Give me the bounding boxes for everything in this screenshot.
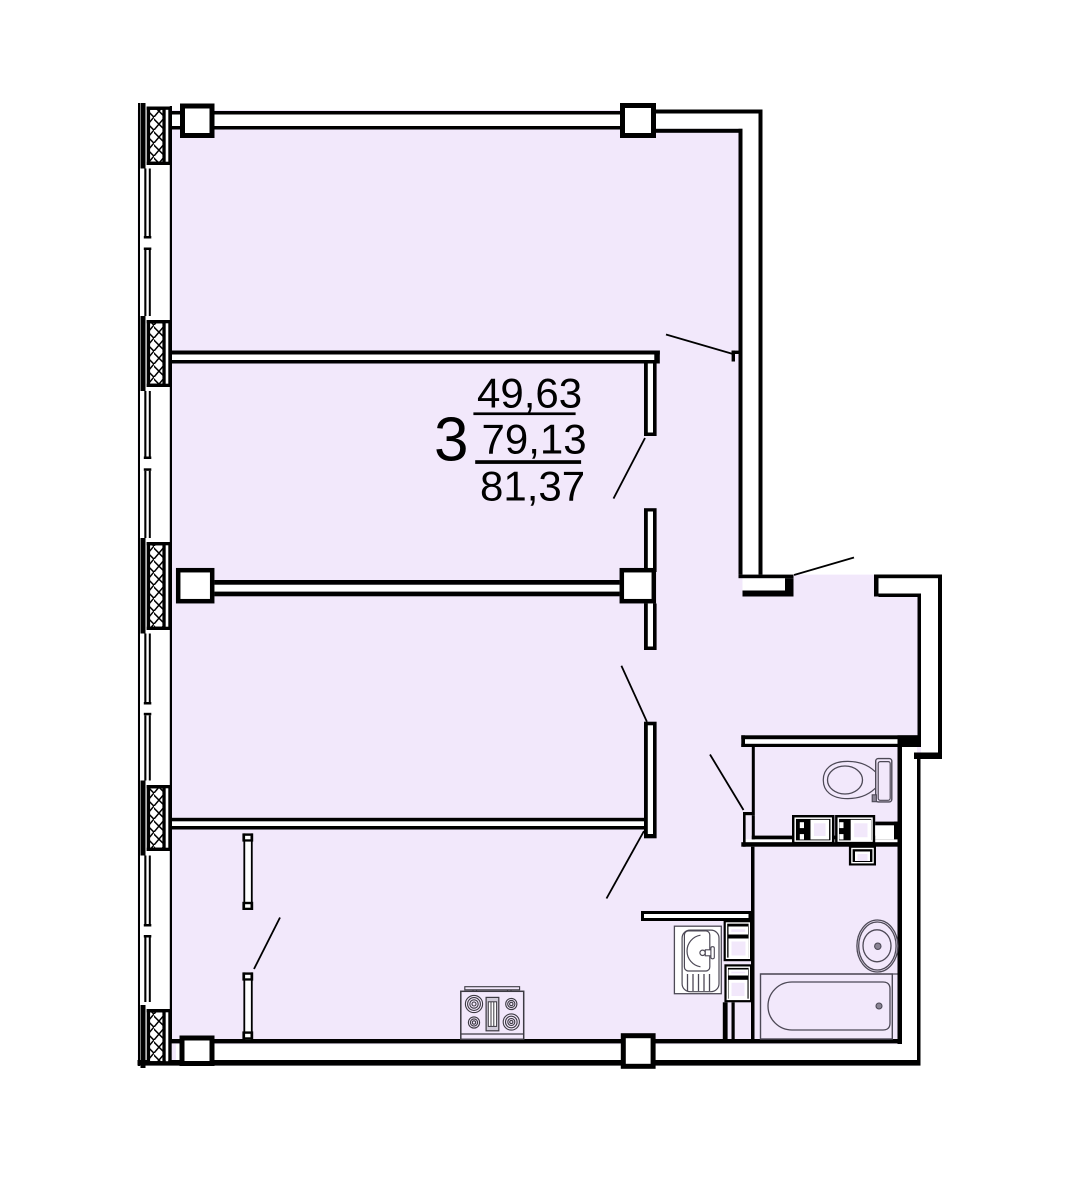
svg-text:81,37: 81,37: [480, 462, 585, 509]
svg-text:79,13: 79,13: [482, 415, 587, 462]
svg-text:49,63: 49,63: [477, 369, 582, 416]
svg-text:3: 3: [434, 405, 468, 474]
